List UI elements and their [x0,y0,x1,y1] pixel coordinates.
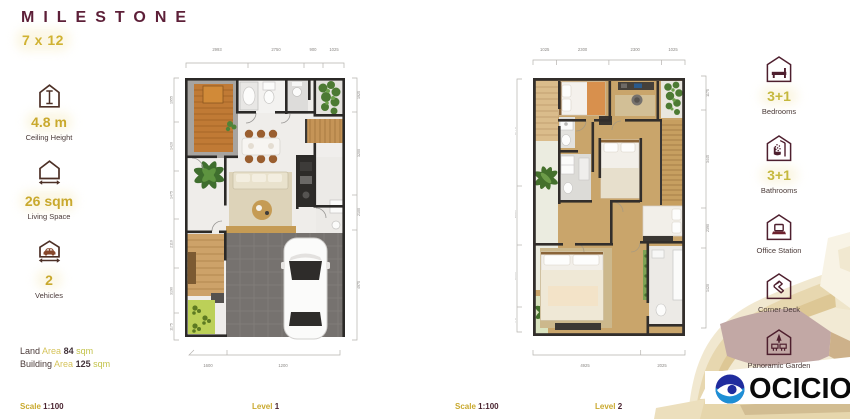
svg-text:2100: 2100 [357,208,361,216]
svg-text:1200: 1200 [278,363,288,368]
svg-text:3775: 3775 [515,127,517,135]
svg-text:1175: 1175 [170,323,174,331]
svg-text:475: 475 [515,318,517,324]
svg-text:3445: 3445 [706,155,710,163]
svg-text:4925: 4925 [580,363,590,368]
svg-text:2110: 2110 [170,240,174,248]
svg-text:1025: 1025 [668,47,678,52]
svg-text:1420: 1420 [170,142,174,150]
svg-text:2750: 2750 [271,47,281,52]
svg-text:3200: 3200 [357,149,361,157]
svg-text:2390: 2390 [706,224,710,232]
svg-text:4975: 4975 [357,281,361,289]
svg-text:2025: 2025 [657,363,667,368]
svg-text:2300: 2300 [631,47,641,52]
svg-text:1925: 1925 [357,91,361,99]
svg-text:1475: 1475 [170,191,174,199]
svg-text:1025: 1025 [540,47,550,52]
svg-text:1420: 1420 [706,284,710,292]
svg-text:1600: 1600 [203,363,213,368]
svg-text:900: 900 [310,47,318,52]
svg-text:1175: 1175 [706,89,710,97]
svg-text:3000: 3000 [515,272,517,280]
svg-text:3190: 3190 [170,287,174,295]
svg-text:1025: 1025 [329,47,339,52]
svg-text:1955: 1955 [170,96,174,104]
svg-text:2993: 2993 [212,47,222,52]
svg-text:2330: 2330 [515,210,517,218]
svg-text:2300: 2300 [578,47,588,52]
